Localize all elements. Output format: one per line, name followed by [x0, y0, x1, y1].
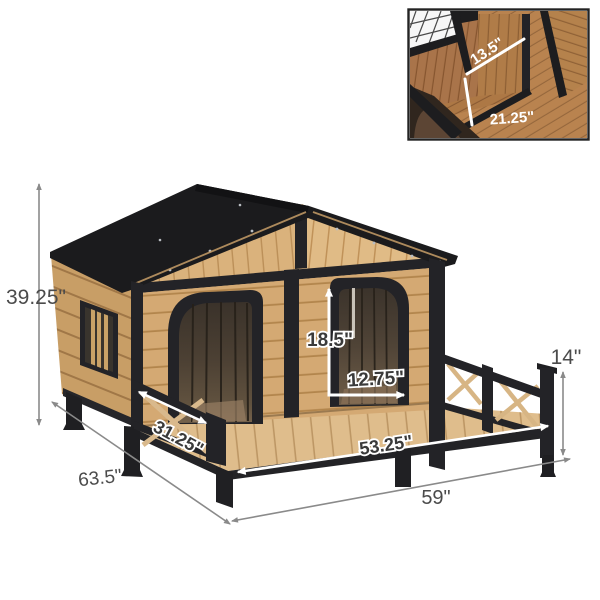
svg-text:14": 14": [551, 346, 582, 369]
svg-text:12.75": 12.75": [347, 368, 405, 392]
svg-text:59": 59": [421, 487, 450, 509]
svg-text:18.5": 18.5": [307, 330, 353, 351]
svg-text:21.25": 21.25": [489, 108, 535, 128]
svg-text:39.25": 39.25": [6, 286, 66, 309]
